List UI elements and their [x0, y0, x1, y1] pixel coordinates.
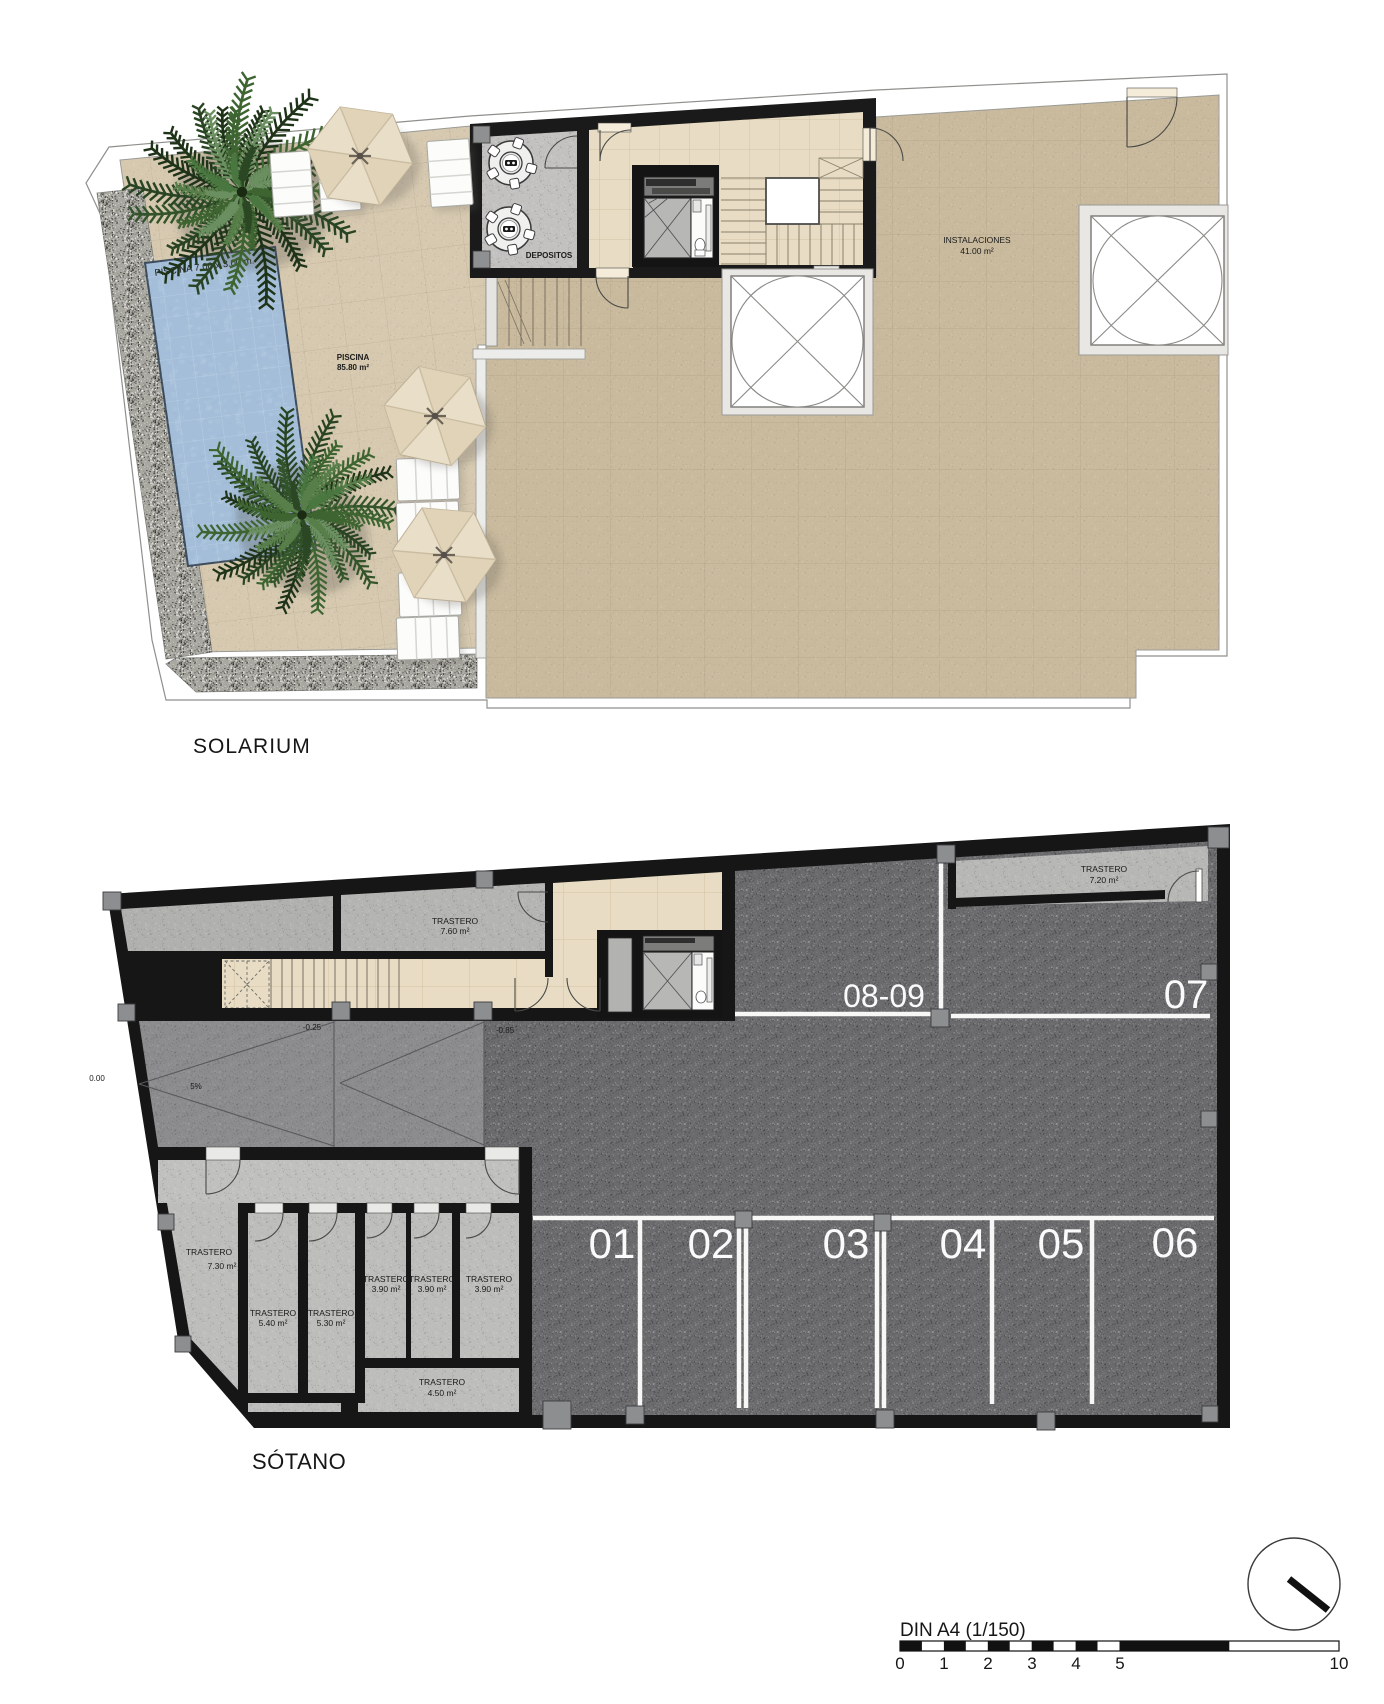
svg-text:-0.25: -0.25 [303, 1023, 322, 1032]
svg-text:5.30 m²: 5.30 m² [317, 1318, 346, 1328]
svg-text:TRASTERO: TRASTERO [419, 1377, 466, 1387]
svg-text:2: 2 [983, 1654, 992, 1673]
svg-text:TRASTERO: TRASTERO [186, 1247, 233, 1257]
svg-text:TRASTERO: TRASTERO [1081, 864, 1128, 874]
svg-text:41.00 m²: 41.00 m² [960, 246, 994, 256]
svg-text:06: 06 [1152, 1219, 1199, 1266]
svg-text:02: 02 [688, 1220, 735, 1267]
svg-text:7.60 m²: 7.60 m² [441, 926, 470, 936]
svg-text:5%: 5% [190, 1082, 202, 1091]
svg-text:3.90 m²: 3.90 m² [418, 1284, 447, 1294]
svg-text:3.90 m²: 3.90 m² [475, 1284, 504, 1294]
svg-text:-0.85: -0.85 [496, 1026, 515, 1035]
svg-text:DEPOSITOS: DEPOSITOS [526, 251, 573, 260]
svg-text:04: 04 [940, 1220, 987, 1267]
svg-text:1: 1 [939, 1654, 948, 1673]
svg-text:TRASTERO: TRASTERO [250, 1308, 297, 1318]
svg-text:03: 03 [823, 1220, 870, 1267]
svg-text:SÓTANO: SÓTANO [252, 1449, 346, 1474]
svg-text:TRASTERO: TRASTERO [432, 916, 479, 926]
svg-text:PISCINA: PISCINA [337, 353, 370, 362]
svg-text:05: 05 [1038, 1220, 1085, 1267]
svg-text:TRASTERO: TRASTERO [363, 1274, 410, 1284]
svg-text:08-09: 08-09 [843, 978, 925, 1014]
svg-text:SOLARIUM: SOLARIUM [193, 735, 311, 758]
svg-text:0.00: 0.00 [89, 1074, 105, 1083]
svg-text:3: 3 [1027, 1654, 1036, 1673]
svg-text:85.80 m²: 85.80 m² [337, 363, 369, 372]
svg-text:0: 0 [895, 1654, 904, 1673]
svg-text:5: 5 [1115, 1654, 1124, 1673]
svg-text:TRASTERO: TRASTERO [308, 1308, 355, 1318]
svg-text:4.50 m²: 4.50 m² [428, 1388, 457, 1398]
svg-text:5.40 m²: 5.40 m² [259, 1318, 288, 1328]
svg-text:TRASTERO: TRASTERO [466, 1274, 513, 1284]
svg-text:4: 4 [1071, 1654, 1080, 1673]
svg-text:01: 01 [589, 1220, 636, 1267]
svg-text:10: 10 [1330, 1654, 1349, 1673]
svg-text:INSTALACIONES: INSTALACIONES [943, 235, 1011, 245]
svg-text:7.30 m²: 7.30 m² [208, 1261, 237, 1271]
svg-text:DIN A4 (1/150): DIN A4 (1/150) [900, 1620, 1026, 1641]
svg-text:TRASTERO: TRASTERO [409, 1274, 456, 1284]
svg-text:3.90 m²: 3.90 m² [372, 1284, 401, 1294]
svg-text:7.20 m²: 7.20 m² [1090, 875, 1119, 885]
